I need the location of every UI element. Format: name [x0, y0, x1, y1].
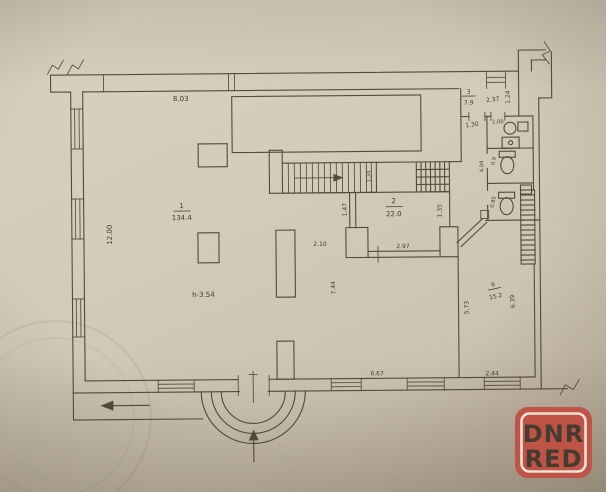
photo-shade [0, 0, 606, 492]
watermark-line1: DNR [523, 420, 585, 448]
watermark-badge: DNR RED [515, 407, 592, 478]
floor-plan-photo: { "colors": { "paper": "#d4cbbc", "ink":… [0, 0, 606, 492]
watermark-line2: RED [525, 445, 583, 473]
